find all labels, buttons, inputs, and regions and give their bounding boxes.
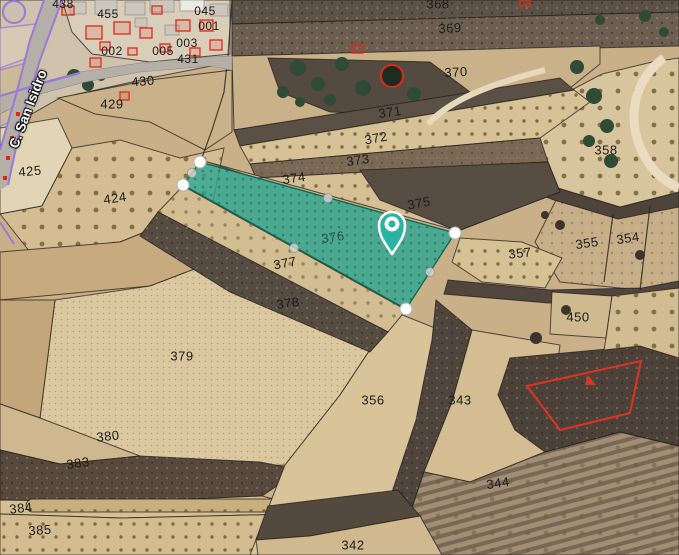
- white-roof: [180, 0, 204, 11]
- parcel-vertex-handle[interactable]: [177, 179, 189, 191]
- parcel-midpoint-handle[interactable]: [426, 268, 435, 277]
- map-canvas[interactable]: 4384550450010020030054314304294254243683…: [0, 0, 679, 555]
- aerial-basemap: [0, 0, 679, 555]
- pond-outline: [381, 65, 403, 87]
- parcel-vertex-handle[interactable]: [449, 227, 461, 239]
- parcel-vertex-handle[interactable]: [194, 156, 206, 168]
- parcel-midpoint-handle[interactable]: [324, 194, 333, 203]
- parcel-midpoint-handle[interactable]: [188, 169, 197, 178]
- parcel-midpoint-handle[interactable]: [290, 244, 299, 253]
- parcel-vertex-handle[interactable]: [400, 303, 412, 315]
